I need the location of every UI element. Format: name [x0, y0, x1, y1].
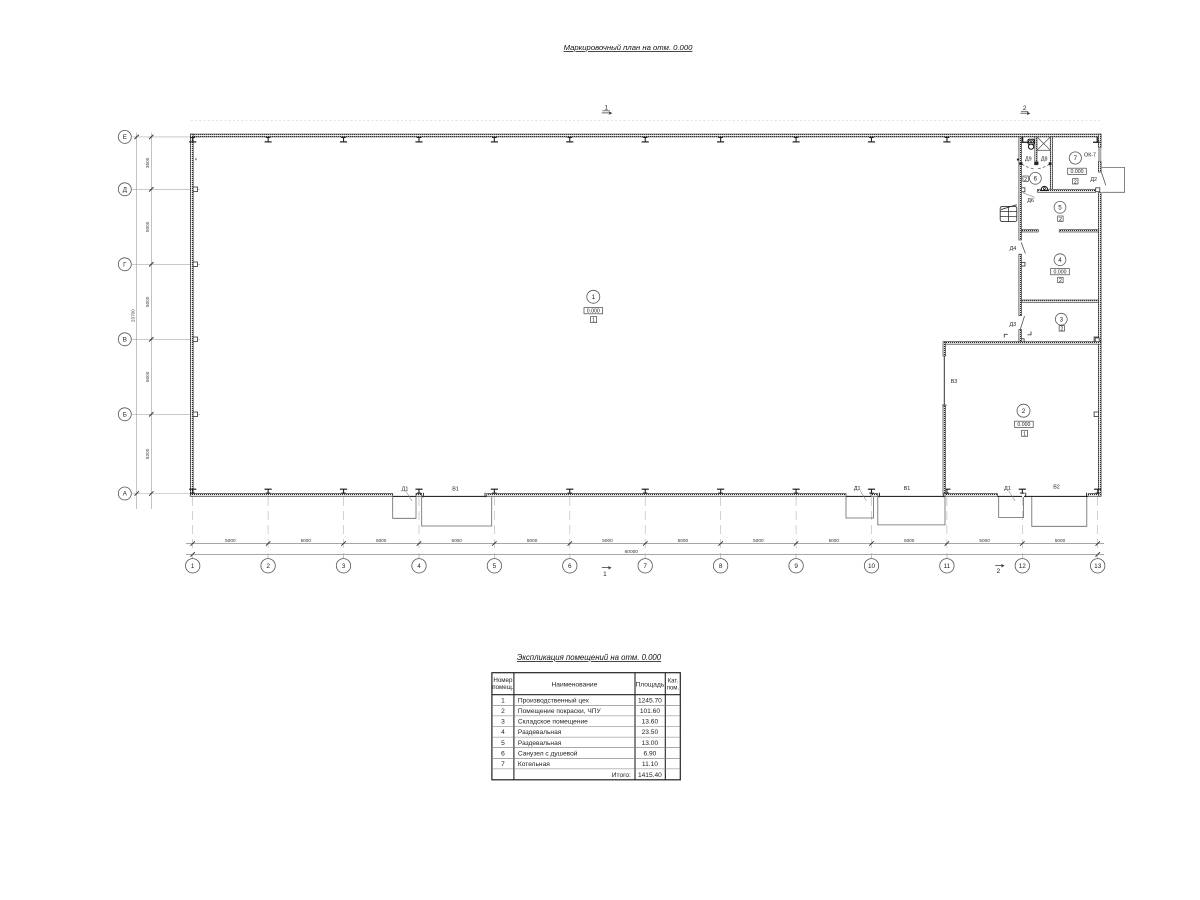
svg-text:Экспликация помещений на отм.: Экспликация помещений на отм. 0.000: [517, 653, 662, 662]
svg-text:0.000: 0.000: [587, 309, 600, 315]
svg-text:Котельная: Котельная: [518, 761, 550, 768]
svg-text:6.90: 6.90: [643, 750, 656, 757]
svg-text:5200: 5200: [145, 448, 150, 459]
svg-text:1: 1: [592, 318, 595, 324]
svg-text:4: 4: [417, 563, 421, 570]
svg-text:10: 10: [868, 563, 876, 570]
svg-text:В1: В1: [904, 486, 911, 492]
svg-text:В3: В3: [951, 379, 958, 385]
svg-text:Кат.: Кат.: [668, 679, 679, 685]
svg-text:11.10: 11.10: [642, 761, 658, 768]
svg-text:1415.40: 1415.40: [638, 772, 662, 779]
svg-text:5000: 5000: [451, 538, 462, 543]
svg-text:Д1: Д1: [854, 486, 861, 492]
svg-text:Раздевальная: Раздевальная: [518, 740, 562, 747]
svg-text:5000: 5000: [301, 538, 312, 543]
svg-text:1245.70: 1245.70: [638, 697, 662, 704]
svg-text:Б: Б: [123, 412, 127, 419]
svg-text:13: 13: [1094, 563, 1102, 570]
svg-text:5000: 5000: [829, 538, 840, 543]
svg-text:6: 6: [568, 563, 572, 570]
svg-text:12: 12: [1019, 563, 1027, 570]
svg-text:помещ.: помещ.: [492, 684, 514, 691]
svg-text:5000: 5000: [602, 538, 613, 543]
svg-text:1: 1: [191, 563, 195, 570]
svg-text:2: 2: [266, 563, 270, 570]
svg-text:Маркировочный план на отм. 0.0: Маркировочный план на отм. 0.000: [564, 43, 693, 52]
svg-text:2: 2: [1024, 177, 1027, 183]
svg-text:Д2: Д2: [1090, 177, 1097, 183]
svg-text:5000: 5000: [527, 538, 538, 543]
svg-text:Санузел с душевой: Санузел с душевой: [518, 749, 578, 757]
svg-text:Д8: Д8: [1041, 157, 1048, 163]
svg-text:5000: 5000: [904, 538, 915, 543]
svg-text:Раздевальная: Раздевальная: [518, 729, 562, 736]
svg-text:1: 1: [591, 294, 595, 301]
svg-text:5: 5: [501, 740, 505, 747]
svg-text:60000: 60000: [625, 549, 639, 555]
svg-text:5000: 5000: [145, 221, 150, 232]
svg-text:7: 7: [1074, 155, 1078, 162]
svg-text:В1: В1: [452, 486, 459, 492]
svg-text:В2: В2: [1053, 485, 1060, 491]
svg-text:пом.: пом.: [667, 686, 680, 692]
svg-text:5000: 5000: [1055, 538, 1066, 543]
svg-text:0.000: 0.000: [1054, 270, 1067, 276]
svg-text:2: 2: [1059, 217, 1062, 223]
svg-text:5000: 5000: [145, 371, 150, 382]
svg-text:13.00: 13.00: [642, 740, 659, 747]
svg-text:Производственный цех: Производственный цех: [518, 696, 590, 704]
svg-text:3500: 3500: [145, 157, 150, 168]
svg-text:В: В: [123, 337, 127, 344]
svg-text:2: 2: [1022, 408, 1026, 415]
svg-text:7: 7: [501, 761, 505, 768]
svg-text:23.50: 23.50: [642, 729, 659, 736]
svg-text:Е: Е: [123, 134, 127, 141]
svg-text:4: 4: [1058, 257, 1062, 264]
svg-text:23700: 23700: [131, 309, 136, 322]
svg-text:3: 3: [1060, 316, 1064, 323]
svg-text:5: 5: [493, 563, 497, 570]
svg-text:5000: 5000: [225, 538, 236, 543]
svg-text:8: 8: [719, 563, 723, 570]
svg-text:5000: 5000: [753, 538, 764, 543]
svg-text:7: 7: [643, 563, 647, 570]
svg-text:Д9: Д9: [1025, 157, 1032, 163]
svg-text:5000: 5000: [979, 538, 990, 543]
svg-text:6: 6: [1034, 176, 1038, 183]
svg-text:2: 2: [997, 568, 1001, 575]
svg-text:0.000: 0.000: [1017, 422, 1030, 428]
svg-text:5000: 5000: [376, 538, 387, 543]
svg-text:0.000: 0.000: [1071, 169, 1084, 175]
svg-text:9: 9: [794, 563, 798, 570]
svg-text:Д3: Д3: [1009, 322, 1016, 328]
svg-text:11: 11: [944, 563, 951, 570]
svg-text:1: 1: [603, 571, 607, 578]
svg-text:2: 2: [1059, 278, 1062, 284]
svg-text:ОК-7: ОК-7: [1084, 153, 1096, 159]
svg-text:1: 1: [1023, 431, 1026, 437]
svg-text:Номер: Номер: [493, 677, 513, 684]
svg-text:2: 2: [1060, 327, 1063, 333]
svg-text:3: 3: [501, 719, 505, 726]
svg-text:6: 6: [501, 750, 505, 757]
svg-text:2: 2: [501, 708, 505, 715]
svg-text:Итого:: Итого:: [612, 772, 631, 779]
svg-text:Д1: Д1: [1004, 486, 1011, 492]
svg-text:101.60: 101.60: [640, 708, 661, 715]
svg-text:Помещение покраски, ЧПУ: Помещение покраски, ЧПУ: [518, 708, 602, 715]
svg-text:Д6: Д6: [1027, 198, 1034, 204]
svg-text:5: 5: [1058, 205, 1062, 212]
svg-text:1: 1: [501, 697, 505, 704]
svg-text:Д1: Д1: [402, 486, 409, 492]
svg-text:Д4: Д4: [1010, 246, 1017, 252]
svg-text:Складское помещение: Складское помещение: [518, 719, 588, 726]
svg-text:Наименование: Наименование: [552, 682, 598, 689]
svg-text:13.60: 13.60: [642, 719, 659, 726]
svg-text:2: 2: [1074, 179, 1077, 185]
svg-text:5000: 5000: [678, 538, 689, 543]
svg-text:4: 4: [501, 729, 505, 736]
svg-text:3: 3: [342, 563, 346, 570]
svg-text:5000: 5000: [145, 296, 150, 307]
svg-text:Площадь: Площадь: [636, 682, 665, 689]
